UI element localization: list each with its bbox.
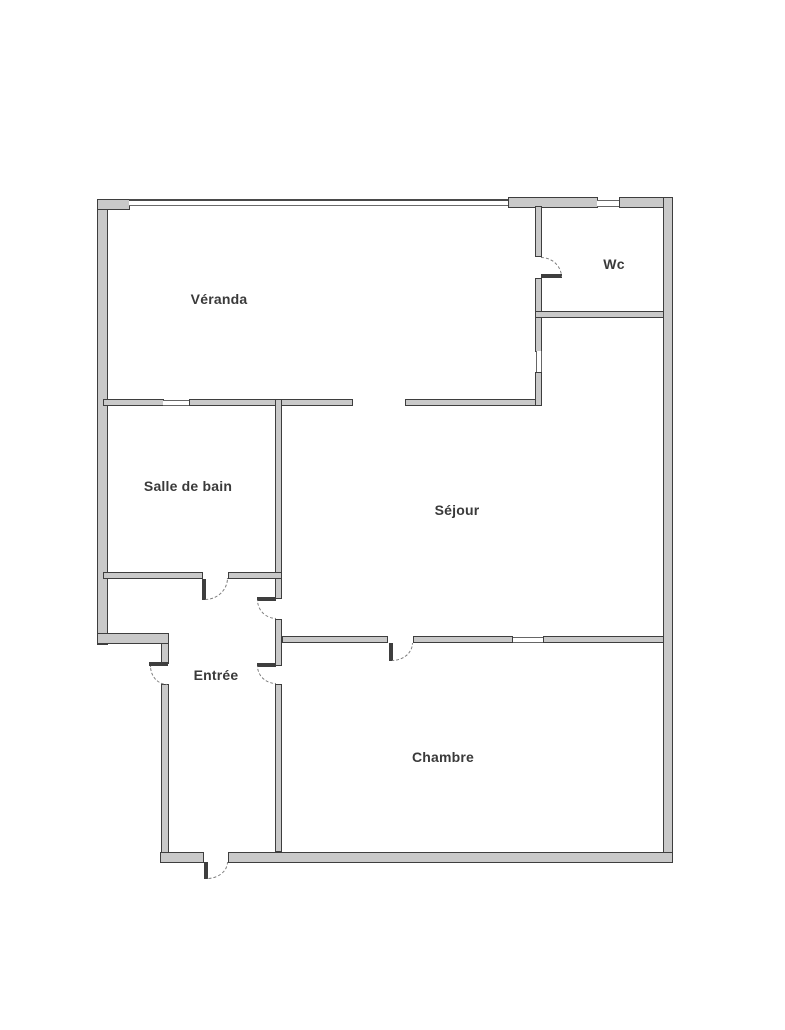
entree-sejour-door-swing-arc	[257, 600, 276, 619]
wall-veranda-bottom-a	[103, 399, 164, 406]
window-veranda-salle-de-bain	[163, 400, 190, 406]
window-sejour-chambre	[513, 637, 543, 643]
wall-exterior-step	[97, 633, 169, 644]
room-label-wc: Wc	[603, 256, 624, 272]
room-label-salle-de-bain: Salle de bain	[144, 478, 232, 494]
wall-entree-chambre	[275, 684, 282, 852]
wall-entree-sejour-mid	[275, 619, 282, 666]
exterior-bottom-door-swing-arc	[207, 862, 228, 879]
wall-exterior-right	[663, 197, 673, 863]
wall-wc-left-upper	[535, 206, 542, 257]
wall-wc-bottom	[535, 311, 664, 318]
wall-exterior-top-middle	[508, 197, 598, 208]
room-label-entree: Entrée	[194, 667, 239, 683]
room-label-veranda: Véranda	[191, 291, 248, 307]
wall-exterior-bottom-left	[160, 852, 204, 863]
wall-salle-de-bain-bottom-a	[103, 572, 203, 579]
salle-de-bain-door-swing-arc	[205, 578, 228, 600]
room-label-chambre: Chambre	[412, 749, 474, 765]
wall-corridor-left-lower	[161, 684, 169, 853]
wc-door-swing-arc	[541, 257, 562, 277]
wall-salle-de-bain-bottom-b	[228, 572, 282, 579]
veranda-glazing-top-wall	[129, 199, 508, 206]
window-wc-top	[597, 200, 620, 207]
wall-chambre-top-c	[543, 636, 664, 643]
entrance-door-swing-arc	[150, 666, 167, 685]
wall-sejour-top	[405, 399, 542, 406]
chambre-door-swing-arc	[392, 643, 413, 661]
wall-exterior-top-corner-block	[97, 199, 130, 210]
wall-corridor-left-upper	[161, 643, 169, 664]
wall-divider-lower	[535, 372, 542, 406]
wall-wc-left-lower	[535, 278, 542, 315]
floor-plan: Véranda Wc Salle de bain Séjour Entrée C…	[0, 0, 785, 1030]
wall-chambre-top-a	[282, 636, 388, 643]
entree-chambre-door-swing-arc	[257, 666, 276, 684]
wall-divider-upper	[535, 317, 542, 352]
wall-chambre-top-b	[413, 636, 513, 643]
wall-veranda-bottom-b	[189, 399, 353, 406]
wall-exterior-bottom-right	[228, 852, 673, 863]
window-veranda-sejour	[536, 351, 542, 373]
wall-salle-de-bain-right	[275, 399, 282, 599]
room-label-sejour: Séjour	[435, 502, 480, 518]
